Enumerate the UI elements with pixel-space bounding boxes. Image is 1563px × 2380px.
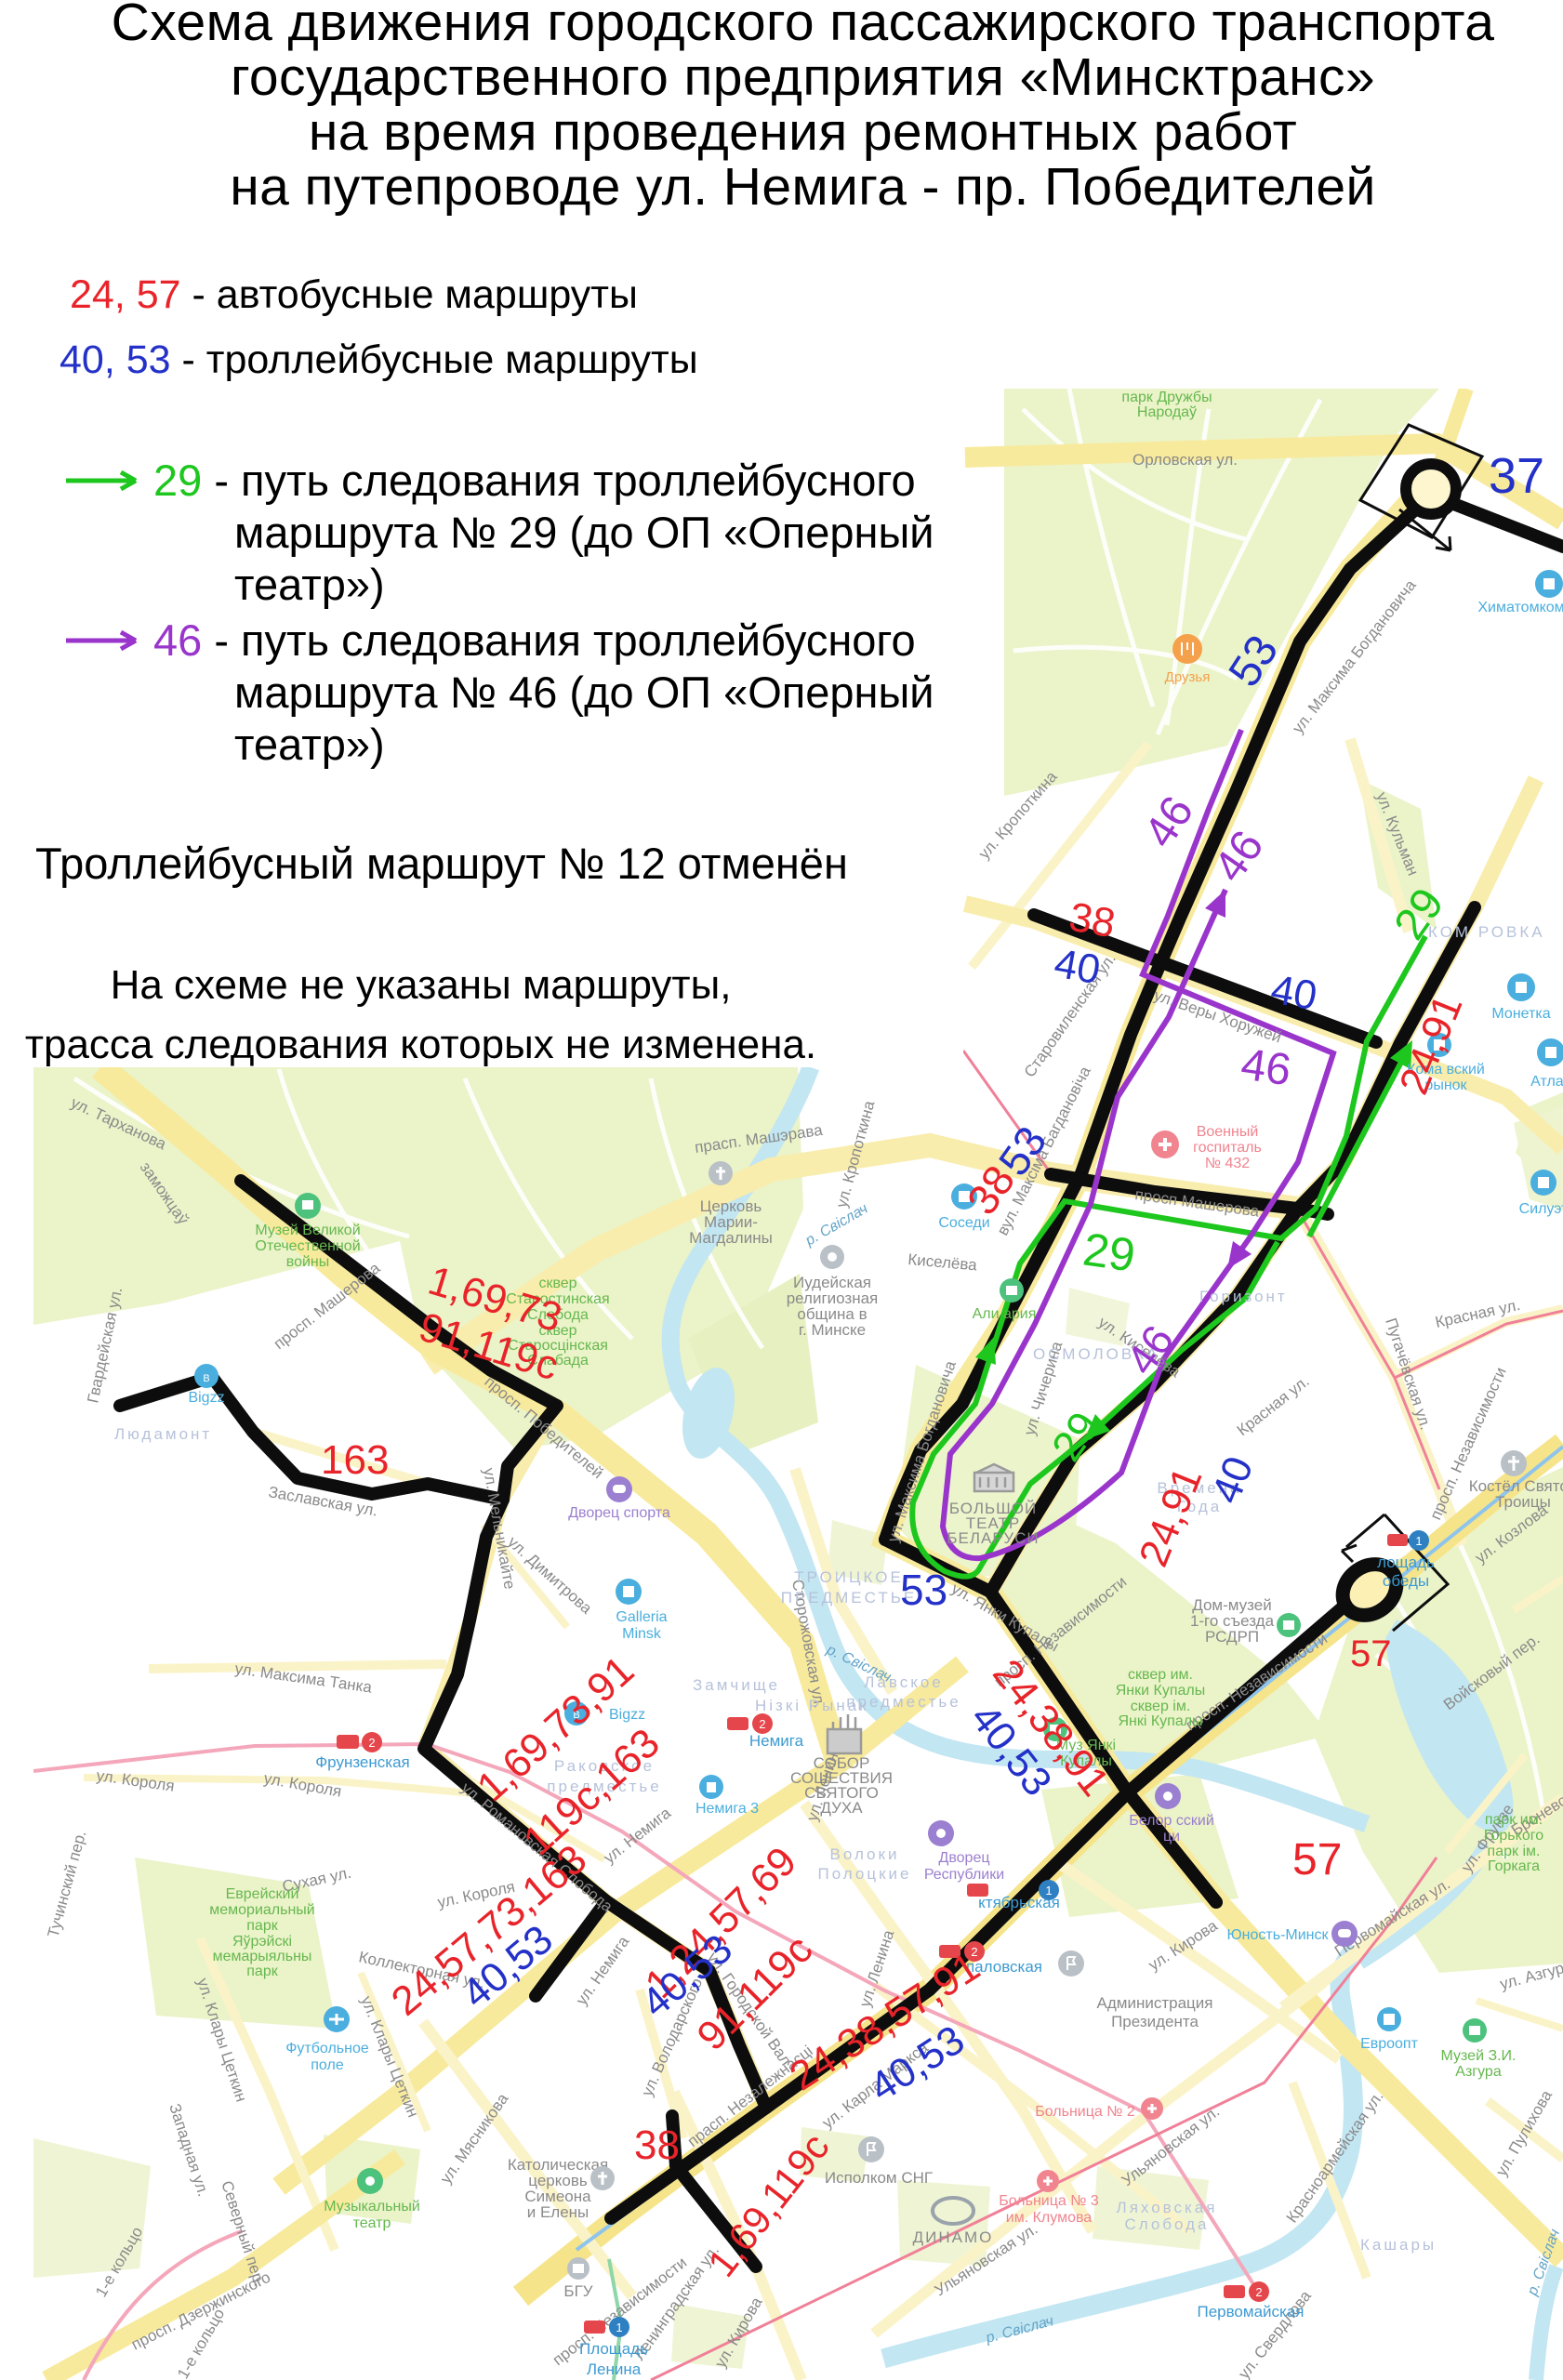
- svg-text:ул. Немига: ул. Немига: [601, 1804, 675, 1867]
- svg-text:Орловская ул.: Орловская ул.: [1133, 451, 1238, 469]
- svg-text:театр: театр: [353, 2215, 391, 2231]
- svg-text:Али ария: Али ария: [973, 1306, 1037, 1322]
- svg-text:сквер ім.: сквер ім.: [1131, 1699, 1191, 1714]
- svg-text:53: 53: [900, 1566, 947, 1614]
- svg-text:Полоцкие: Полоцкие: [818, 1865, 912, 1883]
- svg-text:Евроопт: Евроопт: [1360, 2036, 1419, 2052]
- svg-text:ци: ци: [1163, 1829, 1180, 1844]
- svg-text:40: 40: [1051, 941, 1104, 994]
- svg-text:им. Клумова: им. Клумова: [1006, 2210, 1093, 2226]
- svg-text:ктябрьская: ктябрьская: [978, 1894, 1060, 1911]
- svg-text:57: 57: [1292, 1835, 1342, 1884]
- svg-text:Фрунзенская: Фрунзенская: [315, 1753, 410, 1771]
- svg-text:2: 2: [368, 1736, 375, 1750]
- svg-text:Химатомком: Химатомком: [1477, 600, 1563, 615]
- svg-text:Республики: Республики: [924, 1867, 1004, 1883]
- svg-text:сквер: сквер: [538, 1276, 576, 1291]
- svg-text:B: B: [203, 1373, 209, 1384]
- svg-text:г. Минске: г. Минске: [799, 1321, 866, 1339]
- svg-text:Музей Великой: Музей Великой: [255, 1223, 360, 1238]
- svg-text:р. Свіслач: р. Свіслач: [802, 1201, 871, 1249]
- svg-text:Яўрэйскі: Яўрэйскі: [232, 1934, 292, 1950]
- svg-text:Больница № 3: Больница № 3: [999, 2193, 1099, 2209]
- svg-text:Народаў: Народаў: [1137, 404, 1197, 420]
- svg-text:парк Дружбы: парк Дружбы: [1121, 390, 1212, 405]
- svg-text:ДИНАМО: ДИНАМО: [913, 2228, 994, 2246]
- svg-text:и Елены: и Елены: [527, 2203, 589, 2221]
- svg-text:Белор сский: Белор сский: [1129, 1813, 1214, 1829]
- svg-text:Тучинский пер.: Тучинский пер.: [45, 1829, 90, 1939]
- svg-text:Друзья: Друзья: [1165, 669, 1211, 685]
- svg-text:лощадь: лощадь: [1377, 1554, 1435, 1571]
- svg-text:Горького: Горького: [1484, 1828, 1543, 1844]
- svg-text:Президента: Президента: [1111, 2013, 1199, 2030]
- svg-text:ул. Пулихова: ул. Пулихова: [1492, 2087, 1556, 2179]
- svg-text:Ляховская: Ляховская: [1117, 2199, 1218, 2216]
- svg-text:ПРЕДМЕСТЬЕ: ПРЕДМЕСТЬЕ: [781, 1589, 918, 1606]
- svg-text:Футбольное: Футбольное: [285, 2041, 369, 2056]
- svg-text:Троицы: Троицы: [1495, 1493, 1551, 1511]
- svg-text:Атлант: Атлант: [1530, 1074, 1563, 1090]
- svg-text:БГУ: БГУ: [563, 2282, 592, 2300]
- svg-text:Красная ул.: Красная ул.: [1234, 1372, 1313, 1439]
- svg-text:Юность-Минск: Юность-Минск: [1227, 1927, 1330, 1943]
- svg-text:38: 38: [634, 2122, 680, 2168]
- svg-text:Дворец спорта: Дворец спорта: [568, 1505, 670, 1521]
- svg-text:мемориальный: мемориальный: [209, 1902, 314, 1918]
- svg-text:БЕЛАРУСИ: БЕЛАРУСИ: [947, 1529, 1039, 1547]
- svg-text:2: 2: [1255, 2285, 1262, 2299]
- svg-text:46: 46: [1238, 1039, 1293, 1095]
- svg-text:Galleria: Galleria: [616, 1609, 667, 1625]
- svg-text:Немига 3: Немига 3: [695, 1801, 759, 1817]
- svg-text:Больница № 2: Больница № 2: [1035, 2104, 1135, 2120]
- svg-text:Военный: Военный: [1197, 1124, 1259, 1140]
- svg-text:парк им.: парк им.: [1485, 1812, 1543, 1828]
- svg-text:2: 2: [759, 1717, 765, 1731]
- svg-text:37: 37: [1489, 448, 1544, 504]
- svg-text:ул. Мясникова: ул. Мясникова: [437, 2090, 512, 2187]
- svg-text:Первомайская: Первомайская: [1197, 2303, 1304, 2320]
- svg-text:Ленина: Ленина: [587, 2360, 642, 2378]
- svg-text:Слобода: Слобода: [1124, 2215, 1209, 2233]
- svg-text:1: 1: [1415, 1534, 1422, 1548]
- svg-text:Bigzz: Bigzz: [609, 1707, 645, 1723]
- svg-text:Bigzz: Bigzz: [188, 1390, 224, 1406]
- svg-text:Магдалины: Магдалины: [689, 1229, 773, 1247]
- svg-text:Горизонт: Горизонт: [1199, 1288, 1288, 1305]
- svg-text:38: 38: [1066, 894, 1119, 947]
- svg-text:Minsk: Minsk: [622, 1626, 662, 1642]
- svg-text:ДУХА: ДУХА: [820, 1799, 863, 1817]
- svg-text:40: 40: [1267, 967, 1320, 1020]
- svg-text:мемарыяльны: мемарыяльны: [213, 1949, 312, 1964]
- svg-text:24,91: 24,91: [1131, 1461, 1212, 1572]
- svg-text:Соседи: Соседи: [938, 1215, 989, 1231]
- svg-text:№ 432: № 432: [1205, 1156, 1250, 1171]
- svg-text:Замчище: Замчище: [693, 1676, 780, 1694]
- svg-text:сквер им.: сквер им.: [1128, 1667, 1193, 1683]
- svg-text:Еврейский: Еврейский: [226, 1886, 299, 1902]
- svg-text:29: 29: [1080, 1223, 1138, 1281]
- svg-text:ул. Короля: ул. Короля: [262, 1769, 343, 1800]
- svg-text:Площадь: Площадь: [579, 2340, 648, 2358]
- svg-text:Людамонт: Людамонт: [114, 1425, 212, 1443]
- svg-text:Западная ул.: Западная ул.: [166, 2101, 212, 2199]
- svg-text:Нізкі Рынак: Нізкі Рынак: [755, 1697, 869, 1714]
- svg-text:Янкі Купалы: Янкі Купалы: [1118, 1713, 1202, 1729]
- svg-text:Силуэт: Силуэт: [1519, 1201, 1563, 1217]
- svg-text:Волоки: Волоки: [830, 1845, 900, 1863]
- svg-text:парк: парк: [246, 1918, 278, 1934]
- svg-text:парк: парк: [246, 1963, 278, 1979]
- svg-text:2: 2: [971, 1945, 977, 1959]
- svg-text:Горкага: Горкага: [1488, 1858, 1540, 1874]
- svg-text:Кашары: Кашары: [1360, 2236, 1437, 2254]
- svg-text:ул. Максима Богдановича: ул. Максима Богдановича: [1289, 576, 1420, 737]
- svg-text:Отечественной: Отечественной: [255, 1238, 360, 1254]
- svg-text:ул. Свердлова: ул. Свердлова: [1235, 2287, 1315, 2380]
- svg-text:Дворец: Дворец: [938, 1850, 989, 1866]
- svg-text:Киселёва: Киселёва: [907, 1250, 978, 1274]
- svg-text:Азгура: Азгура: [1455, 2064, 1502, 2080]
- svg-text:КОМ РОВКА: КОМ РОВКА: [1428, 923, 1545, 941]
- svg-text:парк ім.: парк ім.: [1488, 1844, 1541, 1859]
- svg-text:ТРОИЦКОЕ: ТРОИЦКОЕ: [794, 1568, 904, 1586]
- svg-text:1: 1: [616, 2320, 622, 2334]
- svg-text:обеды: обеды: [1383, 1572, 1429, 1590]
- svg-text:поле: поле: [311, 2057, 344, 2073]
- svg-text:Монетка: Монетка: [1491, 1006, 1550, 1022]
- svg-text:Исполком СНГ: Исполком СНГ: [825, 2169, 933, 2187]
- svg-text:ул. Короля: ул. Короля: [95, 1766, 175, 1795]
- svg-text:Немига: Немига: [749, 1732, 804, 1750]
- svg-text:Музыкальный: Музыкальный: [324, 2199, 420, 2215]
- svg-text:РСДРП: РСДРП: [1205, 1628, 1259, 1646]
- svg-text:57: 57: [1350, 1633, 1392, 1674]
- svg-text:Администрация: Администрация: [1097, 1994, 1213, 2012]
- svg-text:Янки Купалы: Янки Купалы: [1116, 1683, 1206, 1699]
- svg-text:войны: войны: [286, 1254, 330, 1270]
- svg-text:Музей З.И.: Музей З.И.: [1441, 2048, 1517, 2064]
- svg-text:госпиталь: госпиталь: [1193, 1140, 1262, 1156]
- svg-text:163: 163: [321, 1437, 389, 1483]
